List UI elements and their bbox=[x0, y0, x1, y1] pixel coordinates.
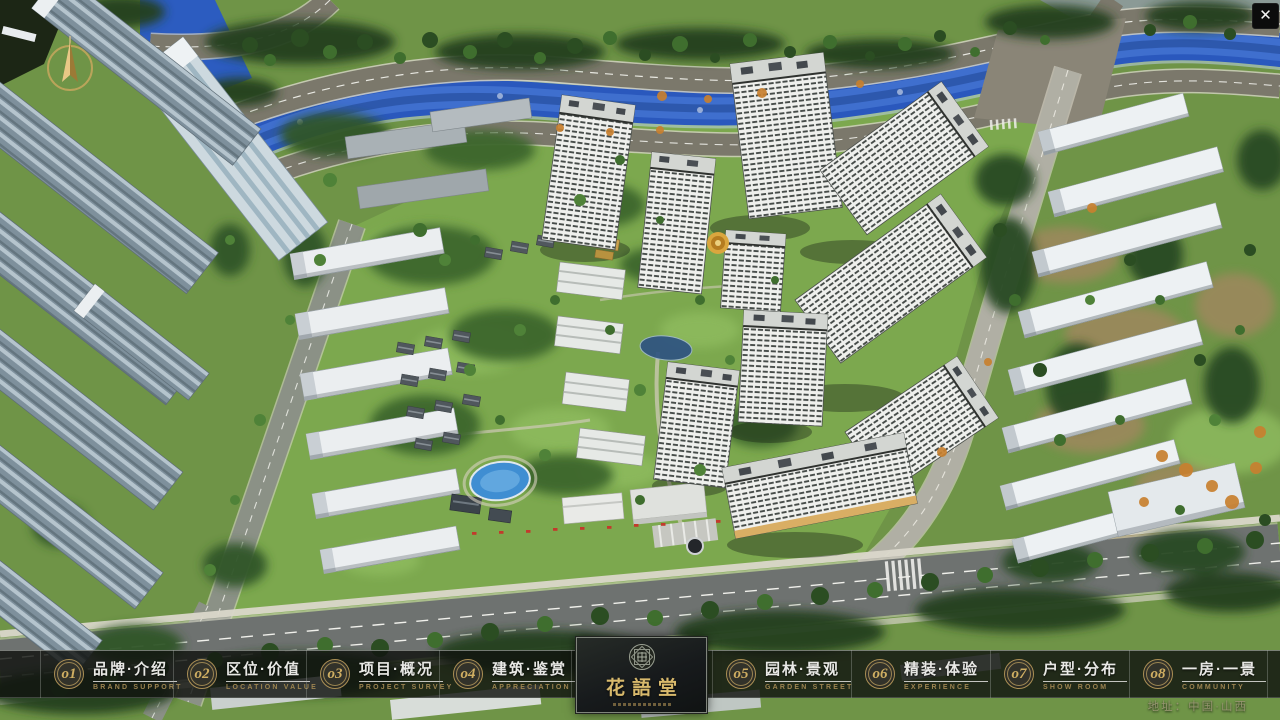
nav-badge-o2: o2 bbox=[187, 659, 217, 689]
nav-rule bbox=[904, 681, 988, 682]
nav-item-location[interactable]: o2 区位·价值 LOCATION VALUE bbox=[173, 650, 306, 698]
nav-rule bbox=[359, 681, 443, 682]
nav-subtitle: APPRECIATION bbox=[492, 684, 576, 691]
nav-item-floorplan[interactable]: o7 户型·分布 SHOW ROOM bbox=[990, 650, 1129, 698]
nav-item-project[interactable]: o3 项目·概况 PROJECT SURVEY bbox=[306, 650, 439, 698]
nav-subtitle: PROJECT SURVEY bbox=[359, 684, 443, 691]
nav-group-right: o5 园林·景观 GARDEN STREET o6 精装·体验 EXPERIEN… bbox=[712, 650, 1268, 698]
nav-item-garden[interactable]: o5 园林·景观 GARDEN STREET bbox=[712, 650, 851, 698]
brand-seal-icon bbox=[628, 643, 656, 671]
nav-item-brand[interactable]: o1 品牌·介绍 BRAND SUPPORT bbox=[40, 650, 173, 698]
sales-app-window: ✕ o1 品牌·介绍 BRAND SUPPORT o2 区位·价值 LOCATI… bbox=[0, 0, 1280, 720]
nav-badge-o5: o5 bbox=[726, 659, 756, 689]
nav-rule bbox=[226, 681, 310, 682]
nav-title: 园林·景观 bbox=[765, 658, 851, 679]
nav-item-views[interactable]: o8 一房·一景 COMMUNITY bbox=[1129, 650, 1268, 698]
project-address: 地址：中国·山西 bbox=[1148, 698, 1248, 714]
nav-title: 区位·价值 bbox=[226, 658, 310, 679]
nav-subtitle: COMMUNITY bbox=[1182, 684, 1266, 691]
nav-subtitle: EXPERIENCE bbox=[904, 684, 988, 691]
brand-title: 花語堂 bbox=[599, 673, 684, 700]
nav-subtitle: LOCATION VALUE bbox=[226, 684, 310, 691]
nav-badge-o8: o8 bbox=[1143, 659, 1173, 689]
entrance-plaza-circle bbox=[687, 538, 703, 554]
nav-item-architecture[interactable]: o4 建筑·鉴赏 APPRECIATION bbox=[439, 650, 572, 698]
nav-rule bbox=[1182, 681, 1266, 682]
nav-title: 品牌·介绍 bbox=[93, 658, 177, 679]
nav-badge-o7: o7 bbox=[1004, 659, 1034, 689]
nav-subtitle: GARDEN STREET bbox=[765, 684, 851, 691]
nav-title: 项目·概况 bbox=[359, 658, 443, 679]
compass-icon bbox=[40, 34, 100, 98]
brand-logo-panel: 花語堂 bbox=[576, 637, 707, 713]
site-map-3d[interactable] bbox=[0, 0, 1280, 720]
nav-subtitle: BRAND SUPPORT bbox=[93, 684, 177, 691]
nav-item-interior[interactable]: o6 精装·体验 EXPERIENCE bbox=[851, 650, 990, 698]
nav-rule bbox=[765, 681, 851, 682]
nav-title: 一房·一景 bbox=[1182, 658, 1266, 679]
nav-subtitle: SHOW ROOM bbox=[1043, 684, 1127, 691]
nav-rule bbox=[492, 681, 576, 682]
nav-badge-o1: o1 bbox=[54, 659, 84, 689]
nav-badge-o6: o6 bbox=[865, 659, 895, 689]
nav-badge-o4: o4 bbox=[453, 659, 483, 689]
logo-tagline bbox=[613, 703, 671, 706]
close-button[interactable]: ✕ bbox=[1252, 3, 1279, 29]
nav-title: 建筑·鉴赏 bbox=[492, 658, 576, 679]
nav-rule bbox=[1043, 681, 1127, 682]
nav-title: 户型·分布 bbox=[1043, 658, 1127, 679]
nav-title: 精装·体验 bbox=[904, 658, 988, 679]
nav-group-left: o1 品牌·介绍 BRAND SUPPORT o2 区位·价值 LOCATION… bbox=[40, 650, 572, 698]
nav-badge-o3: o3 bbox=[320, 659, 350, 689]
nav-rule bbox=[93, 681, 177, 682]
